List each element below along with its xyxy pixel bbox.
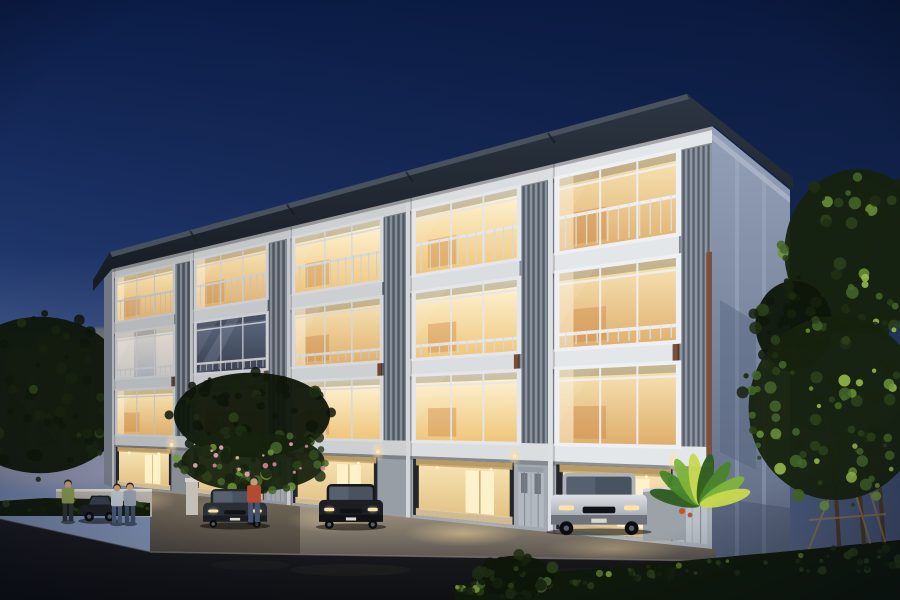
- scene-canvas: [0, 0, 900, 600]
- dusk-townhome-render: [0, 0, 900, 600]
- vignette: [0, 0, 900, 600]
- overlay: [0, 0, 900, 600]
